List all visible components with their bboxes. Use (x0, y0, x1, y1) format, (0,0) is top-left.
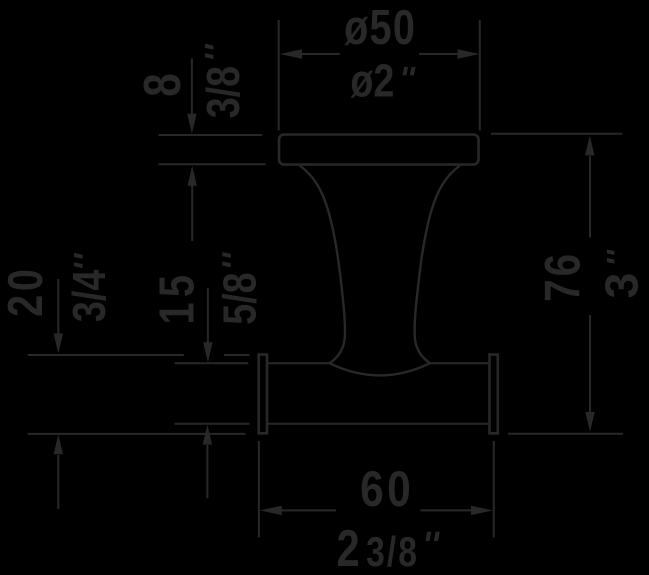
svg-text:ø50: ø50 (344, 1, 415, 55)
svg-text:23/8: 23/8 (336, 520, 418, 575)
svg-text:3/8: 3/8 (197, 66, 249, 118)
svg-text:3: 3 (596, 273, 648, 299)
svg-text:5/8: 5/8 (214, 272, 266, 324)
svg-text:60: 60 (360, 461, 411, 517)
svg-text:3/4: 3/4 (63, 269, 115, 322)
svg-text:76: 76 (535, 254, 591, 302)
svg-text:8: 8 (134, 73, 192, 96)
svg-text:ø2: ø2 (350, 55, 394, 107)
svg-text:15: 15 (151, 275, 205, 324)
svg-text:20: 20 (0, 269, 53, 317)
